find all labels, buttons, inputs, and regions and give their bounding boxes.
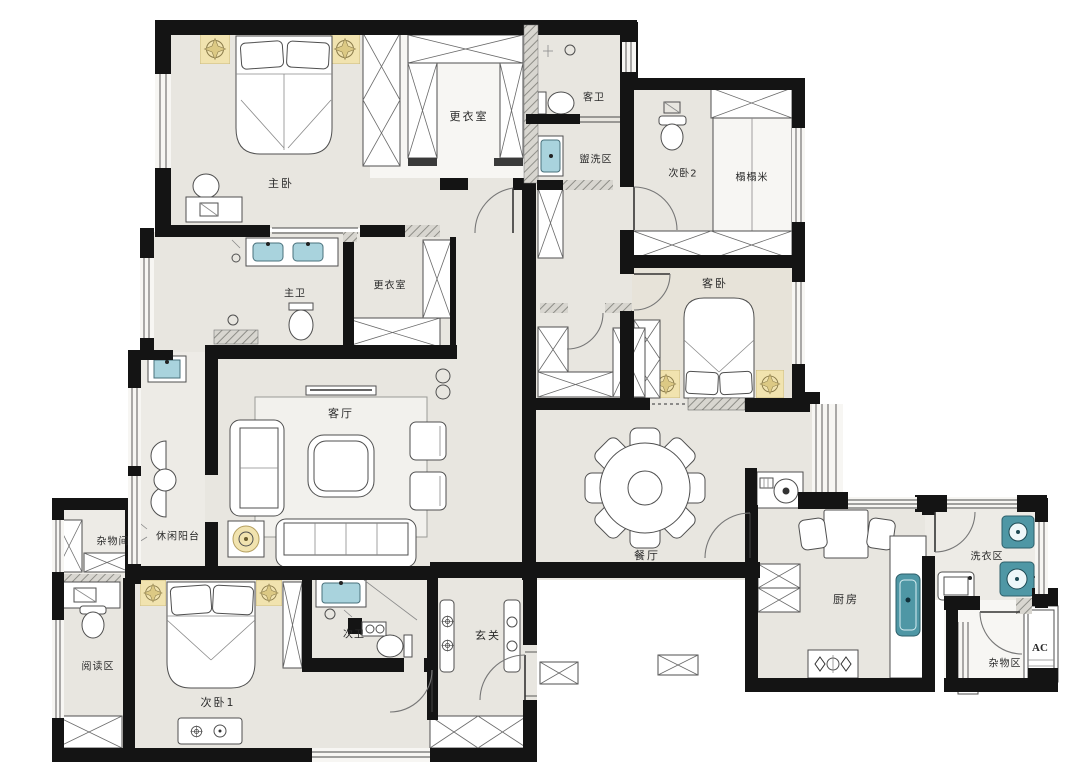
room-label-guest-bathroom: 客卫 — [583, 89, 605, 104]
window-masterbath-left — [140, 258, 154, 338]
toilet-icon — [289, 303, 313, 310]
room-label-storage-area: 杂物区 — [989, 655, 1022, 670]
chair-icon — [193, 174, 219, 198]
window-guestbed-east — [792, 282, 805, 364]
vanity-desk-icon — [186, 197, 242, 222]
cabinet-icon — [504, 600, 520, 672]
water-heater-icon — [757, 472, 803, 508]
exterior-ac-platform — [658, 655, 698, 675]
window-storage-left — [52, 520, 64, 572]
desk-icon — [58, 582, 120, 608]
window-guestbath-east — [622, 42, 636, 72]
window-balcony-1 — [128, 388, 141, 466]
shower-threshold — [214, 330, 258, 344]
room-label-bedroom-1: 次卧1 — [201, 694, 236, 710]
ceiling-lamp-icon — [140, 580, 166, 606]
room-label-guest-bedroom: 客卧 — [702, 275, 728, 291]
room-label-living-room: 客厅 — [328, 405, 354, 421]
room-label-dressing-room-north: 更衣室 — [450, 108, 489, 124]
window-tatami-east — [792, 128, 805, 222]
ceiling-lamp-icon — [200, 34, 230, 64]
room-label-wash-area: 盥洗区 — [580, 151, 613, 166]
armchair-icon — [410, 472, 446, 510]
room-label-entry-hall: 玄关 — [475, 627, 501, 643]
floor-plan-canvas: 主卧 更衣室 客卫 盥洗区 次卧2 榻榻米 主卫 更衣室 客卧 客厅 休闲阳台 … — [0, 0, 1080, 784]
dining-furniture — [585, 428, 705, 548]
room-label-ac-closet: AC — [1032, 642, 1048, 654]
wardrobe-icon — [633, 231, 792, 259]
room-label-master-bedroom: 主卧 — [268, 175, 294, 191]
ceiling-lamp-icon — [256, 580, 282, 606]
toilet-icon — [404, 635, 412, 657]
kitchen-table-icon — [824, 510, 868, 558]
room-label-tatami: 榻榻米 — [736, 169, 769, 184]
window-reading-left — [52, 620, 64, 718]
window-master-left — [155, 74, 171, 168]
dresser-icon — [178, 718, 242, 744]
room-label-bathroom-2: 次卫 — [343, 626, 365, 641]
window-laundry-east — [1035, 522, 1048, 594]
ceiling-lamp-icon — [756, 370, 784, 398]
room-label-bedroom-2: 次卧2 — [668, 165, 697, 180]
armchair-icon — [410, 422, 446, 460]
toilet-icon — [538, 92, 546, 114]
ceiling-lamp-icon — [330, 34, 360, 64]
floor-plan-drawing — [0, 0, 1080, 784]
balcony-table-icon — [154, 469, 176, 491]
room-label-reading-area: 阅读区 — [82, 658, 115, 673]
laundry-sink-icon — [938, 572, 974, 600]
room-label-dressing-room-middle: 更衣室 — [374, 277, 407, 292]
room-label-leisure-balcony: 休闲阳台 — [156, 528, 200, 543]
room-label-laundry-area: 洗衣区 — [971, 548, 1004, 563]
window-balcony-2 — [128, 476, 141, 564]
room-label-dining-room: 餐厅 — [634, 547, 660, 563]
room-label-storage-room: 杂物间 — [97, 533, 130, 548]
room-label-master-bathroom: 主卫 — [284, 285, 306, 300]
room-label-kitchen: 厨房 — [833, 591, 859, 607]
round-dining-table-icon — [600, 443, 690, 533]
window-bottom — [312, 748, 430, 762]
shoe-cabinet-icon — [440, 600, 454, 672]
